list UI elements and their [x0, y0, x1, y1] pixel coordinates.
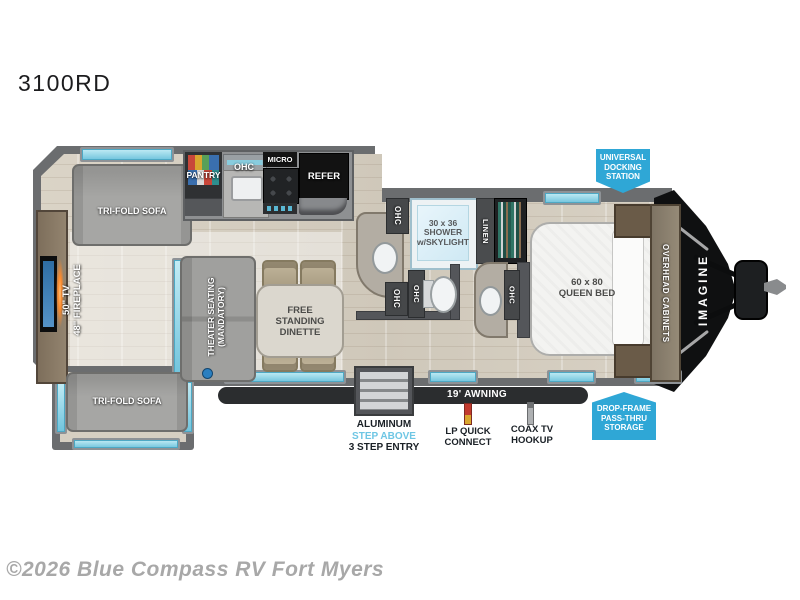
awning-label: 19' AWNING [447, 389, 507, 400]
wardrobe-clothes [498, 202, 521, 258]
window [80, 147, 174, 162]
sofa-label: TRI-FOLD SOFA [80, 204, 184, 218]
ohc-label: OHC [393, 206, 402, 225]
shower-pan: 30 x 36 SHOWER w/SKYLIGHT [417, 205, 469, 261]
shower-label: 30 x 36 SHOWER w/SKYLIGHT [417, 219, 469, 248]
window [543, 191, 601, 205]
nightstand-top [614, 204, 654, 238]
bath-ohc-upper: OHC [386, 198, 409, 234]
refrigerator: REFER [299, 153, 349, 200]
brand-logo: IMAGINE [695, 242, 711, 338]
exterior-speaker-icon [202, 368, 213, 379]
linen-closet: LINEN [476, 198, 495, 264]
microwave: MICRO [263, 152, 297, 167]
dealer-watermark: ©2026 Blue Compass RV Fort Myers [6, 558, 384, 582]
floorplan-model-number: 3100RD [18, 70, 111, 97]
bath-sink [372, 242, 398, 274]
sofa-label: TRI-FOLD SOFA [72, 394, 182, 408]
kitchen-ohc-label: OHC [223, 161, 265, 173]
dinette-table: FREE STANDING DINETTE [256, 284, 344, 358]
ohc-label: OHC [412, 285, 421, 303]
slideout-window [72, 438, 180, 450]
toilet-bowl [430, 276, 457, 313]
tri-fold-sofa-bottom: TRI-FOLD SOFA [66, 372, 188, 432]
tv-fireplace-label: 50" TV 48" FIREPLACE [57, 250, 87, 350]
pass-thru-storage-callout: DROP-FRAME PASS-THRU STORAGE [592, 392, 656, 440]
ohc-label: OHC [508, 286, 517, 304]
lp-quick-connect-note: LP QUICK CONNECT [432, 426, 504, 448]
theater-seating-label: THEATER SEATING (MANDATORY) [200, 267, 232, 367]
coax-hookup-marker [527, 402, 534, 425]
overhead-cabinets-label: OVERHEAD CABINETS [661, 244, 670, 343]
entry-steps [354, 366, 414, 416]
queen-bed-label: 60 x 80 QUEEN BED [532, 266, 642, 310]
linen-label: LINEN [481, 219, 490, 244]
entry-steps-note: ALUMINUM STEP ABOVE 3 STEP ENTRY [336, 419, 432, 454]
step-treads [360, 372, 408, 410]
dishwasher-panel [263, 203, 297, 214]
propane-tank-cover [734, 260, 768, 320]
step-above-note: STEP ABOVE [336, 431, 432, 443]
kitchen-sink [231, 176, 263, 201]
nightstand-bottom [614, 344, 654, 378]
window [428, 370, 478, 384]
ohc-label: OHC [392, 289, 401, 308]
tv-screen-glow [43, 261, 54, 327]
window [547, 370, 596, 384]
bedroom-vanity-ohc: OHC [504, 270, 520, 320]
rv-floorplan-diagram: 3100RD 50" TV 48" FIREPLACE TRI-FOLD SOF… [0, 0, 800, 600]
bath-ohc-lower: OHC [385, 282, 408, 316]
stove-cooktop [263, 168, 299, 204]
tri-fold-sofa-top: TRI-FOLD SOFA [72, 164, 192, 246]
bedroom-sink [479, 286, 502, 316]
pantry: PANTRY [185, 152, 222, 198]
pantry-label: PANTRY [182, 168, 225, 182]
dinette-label: FREE STANDING DINETTE [276, 305, 325, 338]
refrigerator-counter-end [299, 198, 347, 215]
pantry-base-cabinet [185, 198, 222, 216]
coax-tv-hookup-note: COAX TV HOOKUP [496, 424, 568, 446]
lp-quick-connect-marker [464, 403, 472, 425]
overhead-cabinets: OVERHEAD CABINETS [650, 204, 681, 382]
